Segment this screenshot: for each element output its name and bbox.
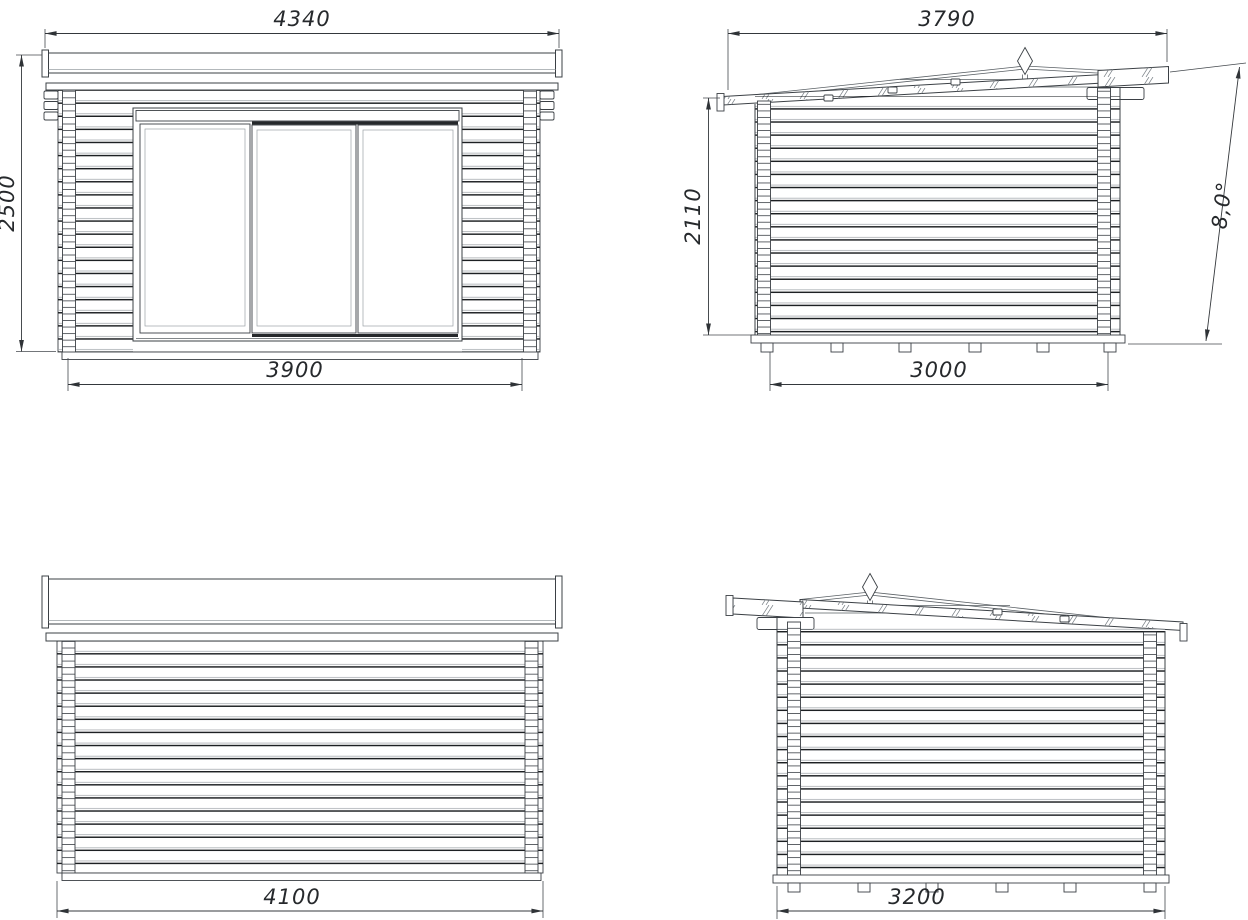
corner-post xyxy=(524,90,537,354)
side-foundation xyxy=(751,335,1125,352)
elevation-drawing-sheet: 4340 2500 3900 xyxy=(0,0,1248,920)
rear-dimensions: 4100 xyxy=(57,881,543,918)
left-side-dimensions: 3200 xyxy=(777,885,1165,919)
corner-post xyxy=(788,622,801,878)
sliding-door xyxy=(133,108,462,341)
rear-log-wall xyxy=(57,641,543,877)
rear-base-plate xyxy=(62,873,541,881)
left-side-elevation-view: 3200 xyxy=(726,574,1187,920)
dimension-label-left-side-base-width: 3200 xyxy=(888,885,945,909)
dimension-label-front-roof-width: 4340 xyxy=(273,7,330,31)
corner-post xyxy=(1098,88,1111,338)
dimension-label-side-roof-width: 3790 xyxy=(918,7,975,31)
door-panel xyxy=(358,125,458,333)
door-panel xyxy=(252,125,356,333)
roof-finial xyxy=(1018,48,1033,81)
corner-post xyxy=(758,101,771,338)
front-elevation-view: 4340 2500 3900 xyxy=(0,7,562,391)
corner-post xyxy=(525,641,538,877)
side-foundation xyxy=(773,875,1169,892)
corner-post xyxy=(62,641,75,877)
corner-post xyxy=(63,90,76,354)
rear-elevation-view: 4100 xyxy=(42,576,562,918)
roof-finial xyxy=(863,574,878,607)
side-log-wall xyxy=(755,79,1120,338)
door-panel xyxy=(140,124,250,333)
side-log-wall xyxy=(777,609,1165,878)
dimension-label-roof-pitch: 8,0° xyxy=(1207,180,1237,230)
dimension-label-front-height: 2500 xyxy=(0,174,19,231)
right-side-elevation-view: 3790 2110 3000 8,0° xyxy=(681,7,1246,391)
dimension-label-front-base-width: 3900 xyxy=(266,358,323,382)
dimension-label-side-wall-height: 2110 xyxy=(681,187,705,244)
corner-post xyxy=(1144,632,1157,878)
dimension-label-side-base-width: 3000 xyxy=(910,358,967,382)
dimension-label-rear-base-width: 4100 xyxy=(263,885,320,909)
elevation-drawing: 4340 2500 3900 xyxy=(0,0,1248,920)
rear-roof xyxy=(42,576,562,641)
